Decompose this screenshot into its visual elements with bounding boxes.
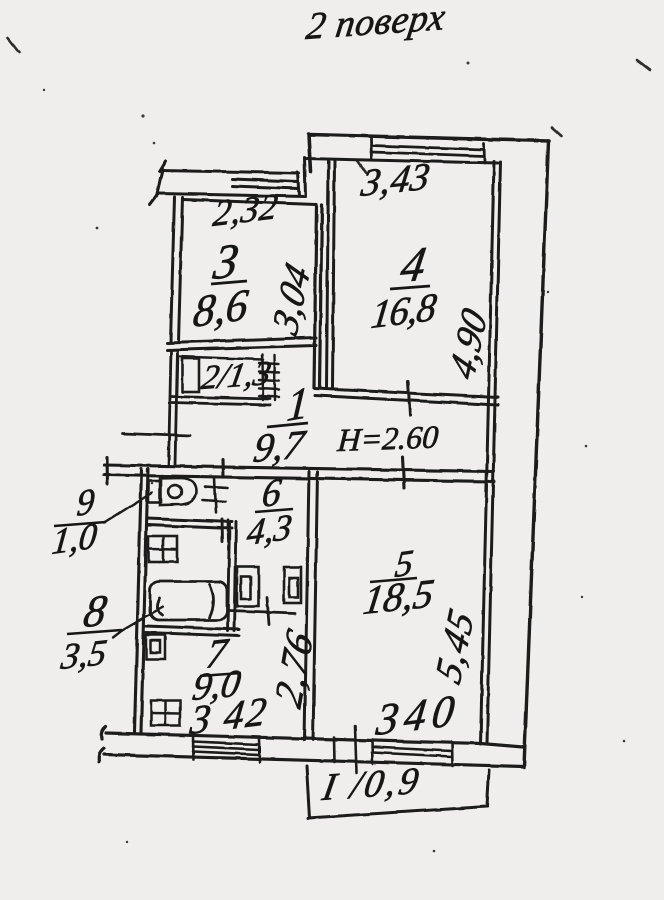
svg-text:4,3: 4,3 [245,505,294,553]
svg-text:H=2.60: H=2.60 [336,418,440,458]
svg-text:1,0: 1,0 [50,514,99,562]
svg-text:2,32: 2,32 [211,185,281,234]
svg-text:I /0,9: I /0,9 [318,760,424,809]
svg-text:8,6: 8,6 [191,279,251,337]
svg-text:2/1,3: 2/1,3 [199,354,274,397]
svg-text:3,43: 3,43 [358,156,433,205]
svg-text:16,8: 16,8 [369,285,439,337]
svg-text:18,5: 18,5 [361,571,437,624]
svg-text:3,5: 3,5 [58,631,110,677]
svg-text:9,7: 9,7 [251,421,310,471]
